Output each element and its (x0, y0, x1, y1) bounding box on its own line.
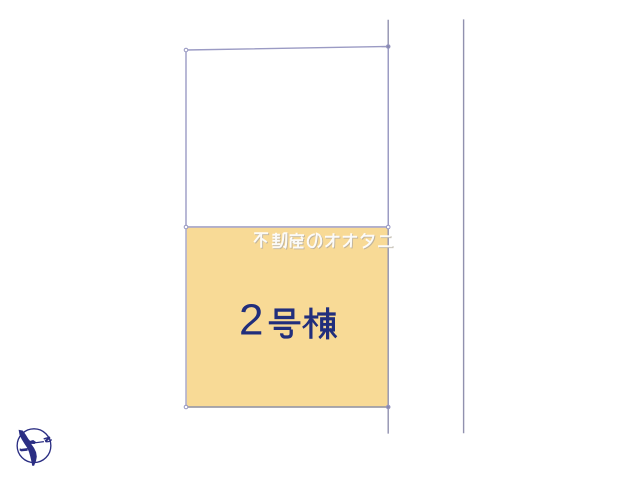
svg-text:2: 2 (239, 296, 263, 345)
